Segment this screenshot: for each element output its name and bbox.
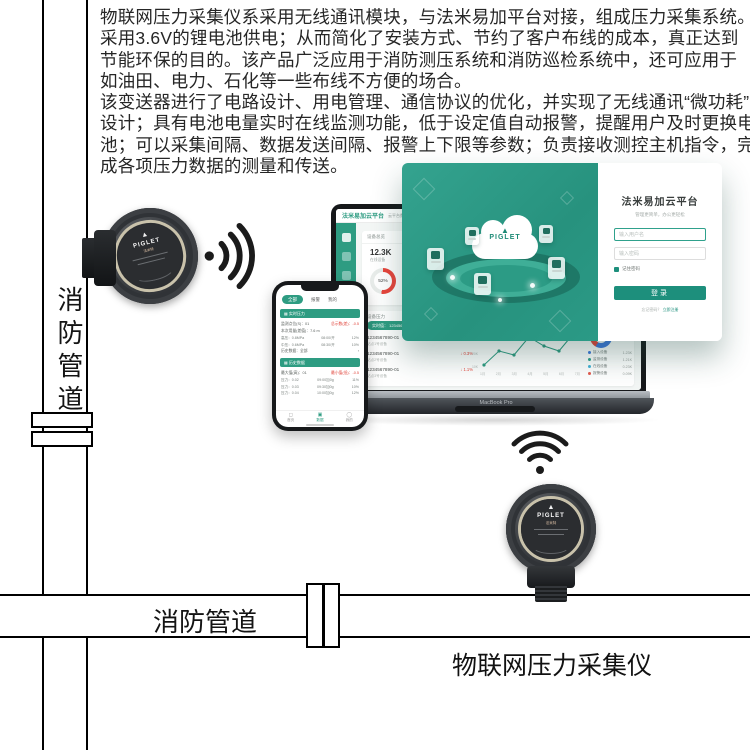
- device-node: [539, 225, 553, 243]
- sensor-thread: [535, 584, 567, 602]
- label-line: [534, 529, 568, 530]
- glow-dot: [530, 283, 535, 288]
- forgot-password-link[interactable]: 忘记密码？: [641, 307, 661, 312]
- phone-notch: [301, 285, 339, 291]
- nav-data[interactable]: ▣数据: [316, 413, 323, 423]
- stat-online: 12.3K 在线设备: [370, 248, 391, 263]
- legend-item: 报警设备0.09K: [588, 371, 632, 376]
- remember-label: 记住密码: [622, 266, 640, 272]
- legend-dot: [588, 358, 591, 361]
- intro-line: 如油田、电力、石化等一些布线不方便的场合。: [100, 71, 748, 92]
- sensor-face: ▲ PIGLET 法米特: [521, 499, 580, 558]
- nav-mine[interactable]: ◯我的: [346, 413, 353, 423]
- sidebar-icon[interactable]: [342, 252, 351, 261]
- glow-dot: [450, 275, 455, 280]
- brand-triangle-icon: ▲: [548, 505, 555, 511]
- laptop-shadow: [330, 414, 662, 426]
- device-node: [427, 248, 444, 270]
- product-label: 物联网压力采集仪: [452, 646, 652, 682]
- brand-name: PIGLET: [472, 234, 538, 241]
- password-input[interactable]: [614, 247, 706, 260]
- pipe-flange: [31, 431, 93, 447]
- device-node: [548, 257, 565, 279]
- pressure-sensor-bottom: ▲ PIGLET 法米特: [506, 484, 602, 604]
- brand-triangle-icon: ▲: [141, 231, 149, 239]
- intro-text: 物联网压力采集仪系采用无线通讯模块，与法米易加平台对接，组成压力采集系统。 采用…: [100, 7, 748, 177]
- dashboard-title: 法米易加云平台: [342, 211, 384, 220]
- brand-name-cn: 法米特: [546, 521, 557, 525]
- login-footer: 忘记密码？ 立即注册: [614, 307, 706, 313]
- login-subtitle: 管理更简单，办公更轻松: [614, 212, 706, 218]
- sensor-face: ▲ PIGLET 法米特: [112, 218, 189, 295]
- sidebar-icon[interactable]: [342, 233, 351, 242]
- username-input[interactable]: [614, 228, 706, 241]
- register-link[interactable]: 立即注册: [663, 307, 679, 312]
- cloud-brand: ▲ PIGLET: [472, 227, 538, 241]
- brand-name-cn: 法米特: [143, 246, 154, 252]
- legend-item: 监测设备1.21K: [588, 357, 632, 362]
- sensor-stem: [94, 230, 116, 286]
- home-indicator: [306, 424, 334, 426]
- phone-bottom-nav: ◻首页 ▣数据 ◯我的: [276, 410, 364, 423]
- label-line: [538, 534, 564, 535]
- cloud-icon: ▲ PIGLET: [472, 233, 538, 259]
- tab-alarm[interactable]: 报警: [311, 297, 320, 303]
- remember-checkbox[interactable]: [614, 267, 619, 272]
- intro-line: 设计；具有电池电量实时在线监测功能，低于设定值自动报警，提醒用户及时更换电: [100, 113, 748, 134]
- legend-dot: [588, 351, 591, 354]
- horizontal-pipe: [0, 594, 750, 638]
- brand-triangle-icon: ▲: [472, 227, 538, 234]
- history-rows: 最大值(高)：01最小值(低)：-0.5 压力：0.0209:00加0g11% …: [276, 369, 364, 398]
- coupling-divider: [322, 585, 325, 646]
- legend-dot: [588, 365, 591, 368]
- label-arc: [532, 538, 570, 554]
- laptop-notch: [455, 406, 535, 412]
- pressure-sensor-left: ▲ PIGLET 法米特: [80, 204, 200, 308]
- brand-name: PIGLET: [537, 513, 565, 519]
- glow-dot: [498, 298, 502, 302]
- remember-row: 记住密码: [614, 266, 706, 272]
- phone: 全部 报警 我的 ▦ 实时压力 监测点位(S)：01总示数(差)：-0.5 本次…: [272, 281, 368, 431]
- legend-dot: [588, 372, 591, 375]
- triangle-decor: [424, 307, 438, 321]
- triangle-decor: [560, 191, 574, 205]
- section-realtime: ▦ 实时压力: [280, 309, 360, 318]
- wifi-signal-icon: [509, 428, 571, 478]
- tab-all[interactable]: 全部: [282, 295, 303, 304]
- wifi-signal-icon: [200, 224, 258, 288]
- legend-item: 接入设备1.23K: [588, 350, 632, 355]
- device-node: [474, 273, 491, 295]
- intro-line: 节能环保的目的。该产品广泛应用于消防测压系统和消防巡检系统中，还可应用于: [100, 50, 748, 71]
- login-button[interactable]: 登录: [614, 286, 706, 300]
- login-panel: 法米易加云平台 管理更简单，办公更轻松 记住密码 登录 忘记密码？ 立即注册: [598, 163, 722, 341]
- sensor-body: ▲ PIGLET 法米特: [506, 484, 596, 574]
- intro-line: 池；可以采集间隔、数据发送间隔、报警上下限等参数；负责接收测控主机指令，完: [100, 135, 748, 156]
- intro-line: 该变送器进行了电路设计、用电管理、通信协议的优化，并实现了无线通讯“微功耗”: [100, 92, 748, 113]
- cloud-illustration: ▲ PIGLET: [402, 163, 598, 341]
- sidebar-icon[interactable]: [342, 271, 351, 280]
- page-root: 物联网压力采集仪系采用无线通讯模块，与法米易加平台对接，组成压力采集系统。 采用…: [0, 0, 750, 750]
- triangle-decor: [549, 310, 572, 333]
- section-history: ▦ 历史数据: [280, 358, 360, 367]
- cloud-platform-overlay: ▲ PIGLET 法米易加云平台 管理更简单，办公更轻松 记住密码 登录: [402, 163, 722, 341]
- realtime-rows: 监测点位(S)：01总示数(差)：-0.5 本次用量(差值)：7.6 m 高压：…: [276, 320, 364, 356]
- device-row[interactable]: 1234567890-01↓ 0.3% 站点2号设备: [367, 351, 473, 363]
- phone-screen: 全部 报警 我的 ▦ 实时压力 监测点位(S)：01总示数(差)：-0.5 本次…: [276, 285, 364, 427]
- intro-line: 物联网压力采集仪系采用无线通讯模块，与法米易加平台对接，组成压力采集系统。: [100, 7, 748, 28]
- device-row[interactable]: 1234567890-01↓ 1.1% 站点3号设备: [367, 367, 473, 379]
- pipe-flange: [31, 412, 93, 428]
- horizontal-pipe-label: 消防管道: [153, 602, 257, 639]
- pipe-coupling: [306, 583, 340, 648]
- donut-gauge-red: 52%: [370, 268, 396, 294]
- triangle-decor: [413, 178, 436, 201]
- legend-item: 在线设备0.23K: [588, 364, 632, 369]
- login-title: 法米易加云平台: [614, 193, 706, 208]
- tab-mine[interactable]: 我的: [328, 297, 337, 303]
- nav-home[interactable]: ◻首页: [287, 413, 294, 423]
- intro-line: 采用3.6V的锂电池供电；从而简化了安装方式、节约了客户布线的成本，真正达到: [100, 28, 748, 49]
